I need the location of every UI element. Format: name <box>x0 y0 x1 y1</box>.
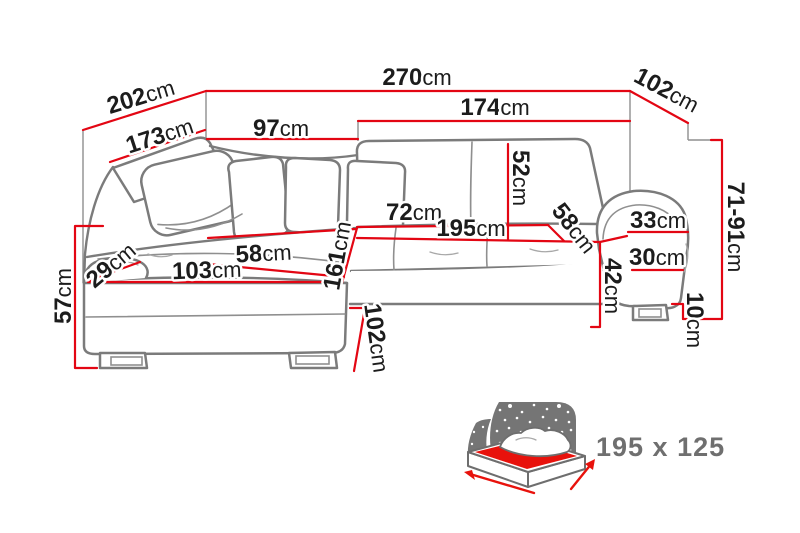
chaise-base <box>84 283 347 354</box>
dim-label-30: 30cm <box>629 244 685 271</box>
dim-label-57: 57cm <box>50 268 77 324</box>
dim-label-195: 195cm <box>436 215 505 242</box>
dim-label-58-left: 58cm <box>235 239 292 269</box>
dim-label-71-91: 71-91cm <box>722 182 749 273</box>
dim-label-10: 10cm <box>681 292 708 348</box>
dim-label-102-bottom: 102cm <box>358 302 394 374</box>
sleeping-area-size: 195 x 125 <box>596 432 725 462</box>
sleeping-function-icon: 195 x 125 <box>464 402 725 493</box>
dim-label-97: 97cm <box>253 115 309 142</box>
dim-label-52: 52cm <box>507 150 534 206</box>
dim-label-174: 174cm <box>460 94 529 121</box>
dim-label-103: 103cm <box>172 256 242 285</box>
dim-label-33: 33cm <box>630 207 686 234</box>
sofa-dimension-diagram: 270cm 202cm 173cm 97cm 174cm 102cm 52cm … <box>0 0 800 533</box>
dim-label-72: 72cm <box>386 199 442 226</box>
dim-label-270: 270cm <box>382 64 451 91</box>
pillow-1 <box>228 157 289 239</box>
dim-label-42: 42cm <box>599 258 626 314</box>
dim-label-202: 202cm <box>104 74 178 120</box>
back-top-edge <box>210 146 358 158</box>
